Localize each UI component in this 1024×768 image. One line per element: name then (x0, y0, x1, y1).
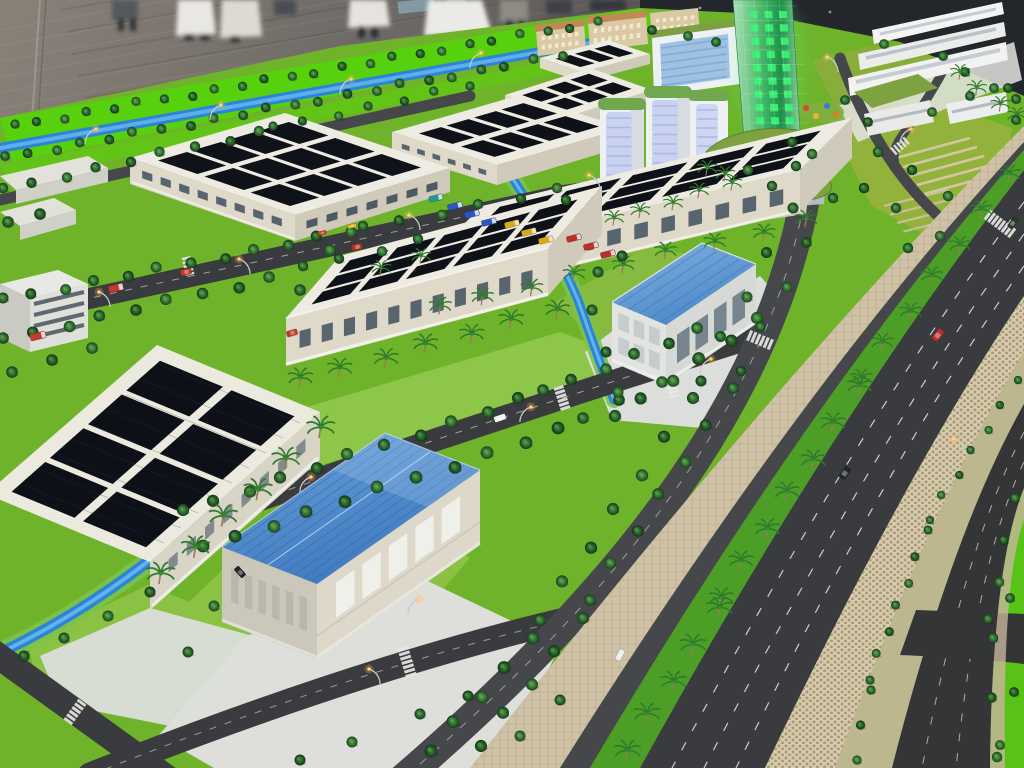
tree (324, 244, 336, 256)
tree-highlight (89, 345, 93, 349)
window-slits (366, 311, 377, 331)
tree (872, 649, 881, 658)
tree (983, 614, 993, 624)
tree (856, 720, 865, 729)
tree-highlight (990, 635, 994, 639)
tree (437, 46, 446, 55)
tree (988, 633, 998, 643)
tree (907, 165, 917, 175)
tree (593, 16, 602, 25)
tree-highlight (518, 195, 522, 199)
tree-highlight (985, 616, 988, 619)
tree-highlight (517, 31, 520, 34)
tower-led-lights (783, 77, 792, 84)
visitor-robe (220, 0, 262, 38)
tree-highlight (162, 96, 165, 99)
tree (859, 183, 869, 193)
tree (425, 745, 438, 758)
tree-highlight (501, 64, 504, 67)
tree-highlight (417, 432, 421, 436)
residential-windows (575, 40, 578, 45)
tree (445, 415, 457, 427)
tree-highlight (28, 180, 32, 184)
tree (652, 488, 664, 500)
tree-highlight (698, 378, 702, 382)
tree-highlight (349, 739, 353, 743)
tree (743, 165, 753, 175)
tree (473, 199, 483, 209)
window-slits (499, 276, 510, 296)
residential-windows (575, 31, 578, 36)
tree (512, 392, 524, 404)
tree-highlight (655, 491, 659, 495)
tree-highlight (500, 664, 504, 668)
tree-highlight (666, 340, 670, 344)
tree-highlight (190, 94, 193, 97)
tree-highlight (263, 104, 266, 107)
tree-highlight (158, 126, 161, 129)
tree-highlight (861, 185, 865, 189)
tower-led-lights (785, 104, 794, 111)
tree (220, 253, 231, 264)
tree-highlight (439, 48, 442, 51)
tree-highlight (380, 441, 384, 445)
residential-windows (622, 24, 626, 29)
tree-highlight (61, 635, 65, 639)
tree (1010, 493, 1020, 503)
tree-highlight (12, 121, 15, 124)
tree (238, 110, 248, 120)
tree-highlight (77, 139, 80, 142)
tree (58, 632, 69, 643)
tree-highlight (339, 63, 342, 66)
tree (268, 520, 281, 533)
tree (424, 75, 434, 85)
tree-highlight (297, 757, 301, 761)
tree (186, 121, 196, 131)
tree-highlight (603, 366, 607, 370)
tree (177, 504, 189, 516)
tree (656, 376, 668, 388)
residential-windows (555, 34, 558, 39)
tree (554, 694, 565, 705)
tree (346, 736, 357, 747)
tree-highlight (528, 681, 532, 685)
tree (938, 51, 948, 61)
tree-highlight (344, 91, 347, 94)
tree-highlight (261, 76, 264, 79)
tree (449, 461, 462, 474)
tree (903, 243, 913, 253)
tree-highlight (994, 754, 998, 758)
tree (1003, 83, 1013, 93)
tree-highlight (557, 697, 561, 701)
residential-windows (568, 41, 571, 46)
tree-highlight (270, 123, 273, 126)
tree-highlight (957, 472, 960, 475)
tree (151, 262, 162, 273)
tree-highlight (256, 128, 260, 132)
tree (414, 708, 425, 719)
tree (782, 282, 792, 292)
tree-highlight (112, 106, 115, 109)
tree (937, 491, 945, 499)
tree-highlight (179, 506, 183, 510)
tree (298, 116, 307, 125)
tree (131, 97, 140, 106)
lamp-light (367, 667, 371, 671)
tree-highlight (607, 560, 611, 564)
tree (548, 645, 560, 657)
tree (863, 117, 873, 127)
tree-highlight (266, 274, 270, 278)
tree (607, 503, 619, 515)
tree-highlight (25, 150, 28, 153)
tree (75, 137, 85, 147)
tree-highlight (54, 147, 57, 150)
tree (600, 346, 611, 357)
tree (612, 386, 623, 397)
tree-highlight (685, 33, 688, 36)
tree (852, 755, 861, 764)
tree (687, 392, 699, 404)
tree-highlight (313, 233, 317, 237)
tree-highlight (789, 139, 793, 143)
tree-highlight (945, 193, 949, 197)
tree-highlight (313, 465, 317, 469)
tree (23, 148, 33, 158)
tree (110, 104, 119, 113)
tree-highlight (402, 98, 405, 101)
tree-highlight (360, 223, 364, 227)
tree-highlight (297, 287, 301, 291)
tree (514, 730, 525, 741)
tree-highlight (83, 109, 86, 112)
residential-windows (608, 26, 612, 31)
tree (516, 193, 526, 203)
tree-highlight (567, 26, 570, 29)
tree (339, 495, 352, 508)
tree (497, 707, 509, 719)
tree (984, 426, 992, 434)
visitor-leg (371, 26, 378, 38)
visitor-shoe (230, 36, 240, 42)
tree-highlight (893, 602, 896, 605)
tree (910, 552, 919, 561)
tree-highlight (988, 694, 992, 698)
tree-highlight (147, 589, 151, 593)
tree (1009, 687, 1019, 697)
tree (104, 135, 114, 145)
tree-highlight (185, 649, 189, 653)
tree-highlight (240, 84, 243, 87)
tree (261, 102, 271, 112)
tree (415, 430, 427, 442)
tree (632, 525, 644, 537)
lamp-light (529, 405, 533, 409)
tower-led-lights (765, 24, 774, 31)
tree (82, 107, 91, 116)
visitor-figure (500, 0, 528, 22)
tree (18, 650, 29, 661)
wall-ribs (245, 574, 253, 610)
tree (127, 127, 137, 137)
tree-highlight (1011, 689, 1014, 692)
tree-highlight (649, 27, 652, 30)
tree (123, 271, 134, 282)
tower-led-lights (755, 104, 764, 111)
tree (476, 65, 486, 75)
tree (584, 594, 596, 606)
tree-highlight (270, 523, 274, 527)
tree-highlight (439, 212, 443, 216)
tree (787, 137, 797, 147)
tree-highlight (236, 284, 240, 288)
tree (156, 124, 166, 134)
tree-highlight (1015, 377, 1018, 380)
tree-highlight (858, 722, 861, 725)
tree-highlight (619, 253, 623, 257)
green-roof (644, 86, 692, 98)
tree (767, 181, 777, 191)
tree-highlight (784, 284, 788, 288)
tree (658, 431, 670, 443)
tree (828, 193, 838, 203)
tree-highlight (689, 394, 693, 398)
tree (2, 216, 14, 228)
tree (667, 375, 679, 387)
tree-highlight (499, 709, 503, 713)
tree (416, 49, 425, 58)
tree (577, 612, 589, 624)
tower-led-lights (756, 117, 765, 124)
tree (609, 410, 621, 422)
tree (840, 95, 850, 105)
tree-highlight (996, 579, 999, 582)
tree-highlight (793, 163, 797, 167)
tree (585, 542, 597, 554)
tree-highlight (396, 217, 400, 221)
tower-led-lights (785, 117, 794, 124)
tree-highlight (809, 151, 813, 155)
tree-highlight (738, 368, 742, 372)
tree-highlight (875, 149, 879, 153)
tree-highlight (489, 38, 492, 41)
tree (693, 352, 705, 364)
tree (476, 691, 489, 704)
tree-highlight (790, 205, 794, 209)
tree (413, 234, 423, 244)
tree-highlight (153, 264, 157, 268)
tree (248, 244, 259, 255)
visitor-robe (348, 0, 390, 28)
tower-led-lights (749, 11, 758, 18)
tree (371, 481, 384, 494)
lamp-light (219, 103, 223, 107)
tree (366, 59, 375, 68)
playground-toy (824, 103, 830, 109)
tree (527, 632, 540, 645)
lamp-light (309, 475, 313, 479)
tree-highlight (484, 409, 488, 413)
tree (537, 384, 549, 396)
tree (337, 62, 346, 71)
tree (309, 69, 318, 78)
window-slits (455, 287, 466, 307)
tree-highlight (587, 597, 591, 601)
tree-highlight (873, 651, 876, 654)
tower-led-lights (754, 77, 763, 84)
tree (865, 675, 874, 684)
tree-highlight (514, 394, 518, 398)
lamp-light (587, 173, 591, 177)
tree-highlight (986, 427, 989, 430)
tree-highlight (483, 449, 487, 453)
residential-windows (691, 15, 695, 19)
tree-highlight (231, 532, 235, 536)
tree (274, 471, 286, 483)
tree (238, 82, 247, 91)
residential-windows (601, 27, 605, 32)
tree (923, 525, 932, 534)
wall-ribs (299, 595, 307, 631)
wall-ribs (231, 569, 239, 605)
tree (447, 715, 460, 728)
tree-highlight (211, 86, 214, 89)
lamp-light (952, 437, 956, 441)
residential-windows (615, 35, 619, 40)
tree (410, 471, 423, 484)
tree (565, 24, 574, 33)
tree-highlight (426, 77, 429, 80)
tree (866, 685, 875, 694)
residential-windows (637, 23, 641, 28)
tree (885, 627, 894, 636)
tree-highlight (906, 581, 909, 584)
tree (787, 202, 798, 213)
tree (102, 610, 113, 621)
tree-highlight (199, 290, 203, 294)
tree-highlight (276, 474, 280, 478)
tree (943, 191, 953, 201)
tree-highlight (389, 53, 392, 56)
tree (294, 284, 306, 296)
window-slits (300, 328, 311, 348)
tower-led-lights (752, 51, 761, 58)
residential-windows (555, 43, 558, 48)
tree-highlight (659, 379, 663, 383)
tree (334, 253, 344, 263)
tree-highlight (292, 102, 295, 105)
tree-highlight (105, 613, 109, 617)
visitor-leg (118, 18, 124, 31)
tower-led-lights (750, 24, 759, 31)
tree (10, 119, 19, 128)
tree (700, 419, 712, 431)
tree (935, 231, 945, 241)
lamp-light (94, 127, 98, 131)
tree (1005, 593, 1015, 603)
tree-highlight (129, 129, 132, 132)
residential-windows (670, 17, 674, 21)
tree (528, 54, 538, 64)
tree (93, 310, 105, 322)
tree (556, 575, 568, 587)
tree-highlight (302, 508, 306, 512)
tree (395, 78, 405, 88)
tree-highlight (285, 242, 289, 246)
tree (715, 331, 726, 342)
tree (25, 288, 36, 299)
tree-highlight (62, 116, 65, 119)
tree (209, 84, 218, 93)
residential-windows (548, 44, 551, 49)
tree (586, 304, 597, 315)
tree (60, 114, 69, 123)
tree (144, 586, 155, 597)
tree-highlight (1013, 117, 1016, 120)
tree (394, 215, 404, 225)
tree (475, 740, 487, 752)
tree (592, 266, 603, 277)
tree-highlight (631, 350, 635, 354)
tree (387, 52, 396, 61)
tree-highlight (763, 249, 767, 253)
tree (283, 240, 294, 251)
tree-highlight (745, 167, 749, 171)
tree (1014, 376, 1022, 384)
tree (233, 282, 245, 294)
tree (526, 678, 538, 690)
residential-windows (562, 42, 565, 47)
tree-highlight (929, 109, 932, 112)
tree (628, 348, 640, 360)
tree (725, 335, 737, 347)
tree-highlight (341, 498, 345, 502)
visitor-figure (274, 0, 296, 15)
tree-highlight (9, 369, 13, 373)
backdrop-light (699, 7, 702, 10)
tree-highlight (311, 71, 314, 74)
playground-toy (813, 113, 819, 119)
tree-highlight (529, 634, 533, 638)
residential-windows (630, 34, 634, 39)
tree-highlight (728, 337, 732, 341)
tree-highlight (634, 528, 638, 532)
tree (88, 275, 99, 286)
tree (26, 178, 36, 188)
tree (208, 600, 219, 611)
tree-highlight (991, 85, 994, 88)
residential-windows (630, 24, 634, 29)
tree-highlight (427, 747, 431, 751)
tree-highlight (587, 544, 591, 548)
tree-highlight (465, 693, 469, 697)
tree (487, 36, 496, 45)
tree-highlight (545, 28, 548, 31)
tree-highlight (290, 73, 293, 76)
tree-highlight (467, 41, 470, 44)
tree (378, 439, 390, 451)
tree (1011, 94, 1021, 104)
window-slits (322, 322, 333, 342)
tree-highlight (615, 389, 619, 393)
tree-highlight (133, 307, 137, 311)
visitor-figure (590, 0, 626, 11)
playground-toy (803, 105, 809, 111)
tree-highlight (1012, 495, 1015, 498)
tree (311, 462, 323, 474)
